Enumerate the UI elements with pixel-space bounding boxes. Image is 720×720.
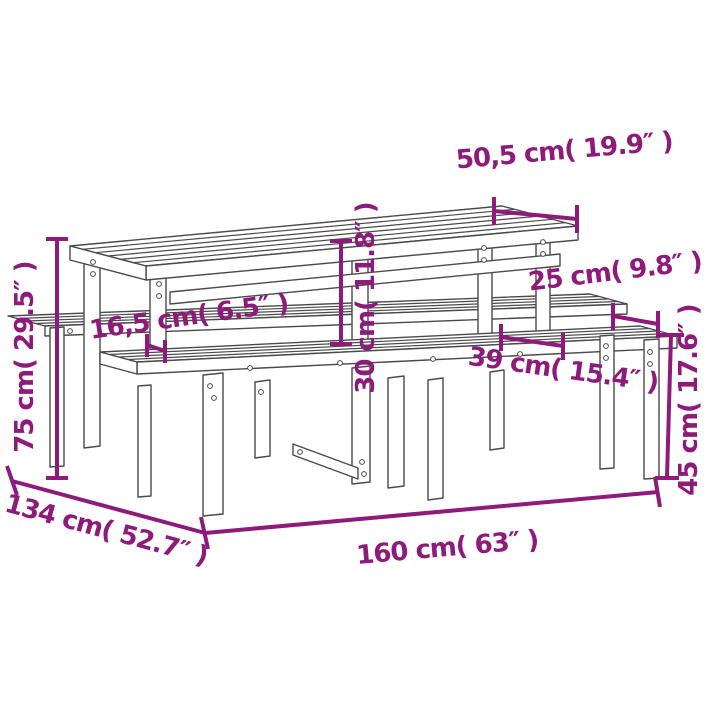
dim-set-depth: 134 cm( 52.7″ )	[2, 466, 211, 572]
dim-bench-height: 45 cm( 17.6″ )	[655, 304, 704, 495]
dimension-label: 160 cm( 63″ )	[355, 525, 539, 571]
legs-and-braces	[138, 366, 504, 516]
dimension-label: 30 cm( 11.8″ )	[351, 202, 381, 393]
dimension-label: 75 cm( 29.5″ )	[10, 261, 40, 452]
dimension-label: 45 cm( 17.6″ )	[674, 304, 704, 495]
dimension-label: 134 cm( 52.7″ )	[2, 489, 211, 572]
dimension-label: 50,5 cm( 19.9″ )	[455, 127, 674, 176]
dimension-diagram: 50,5 cm( 19.9″ ) 25 cm( 9.8″ ) 16,5 cm( …	[0, 0, 720, 720]
picnic-table-diagram: 50,5 cm( 19.9″ ) 25 cm( 9.8″ ) 16,5 cm( …	[0, 0, 720, 720]
